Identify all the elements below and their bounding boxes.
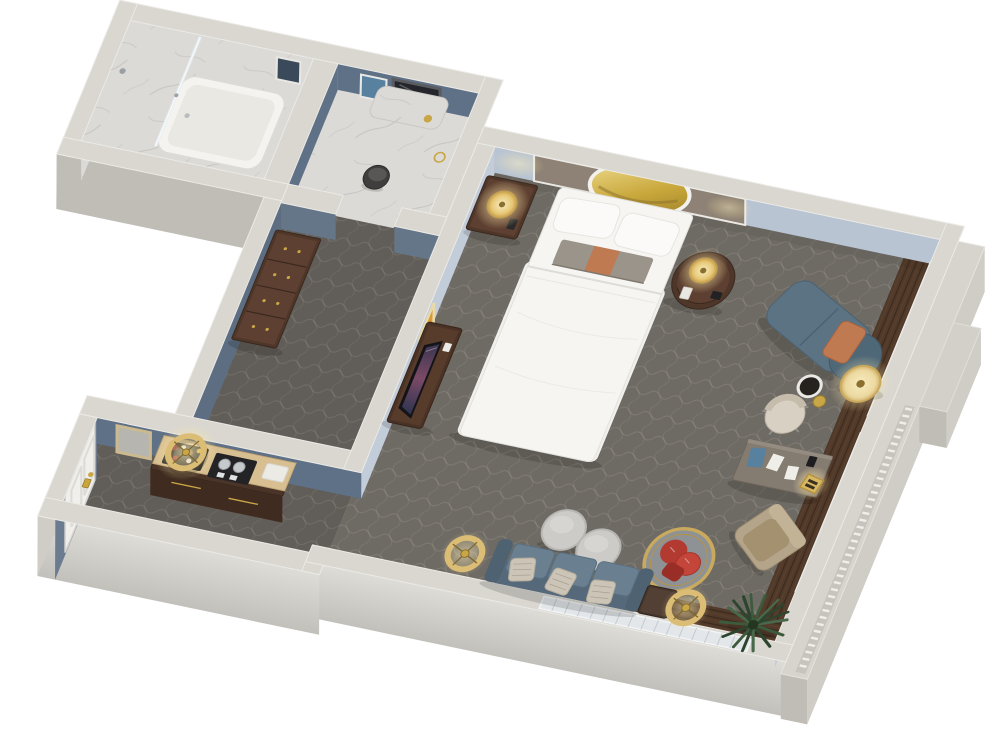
floorplan-render: [0, 0, 1000, 750]
floorplan-stage: [0, 0, 1000, 750]
